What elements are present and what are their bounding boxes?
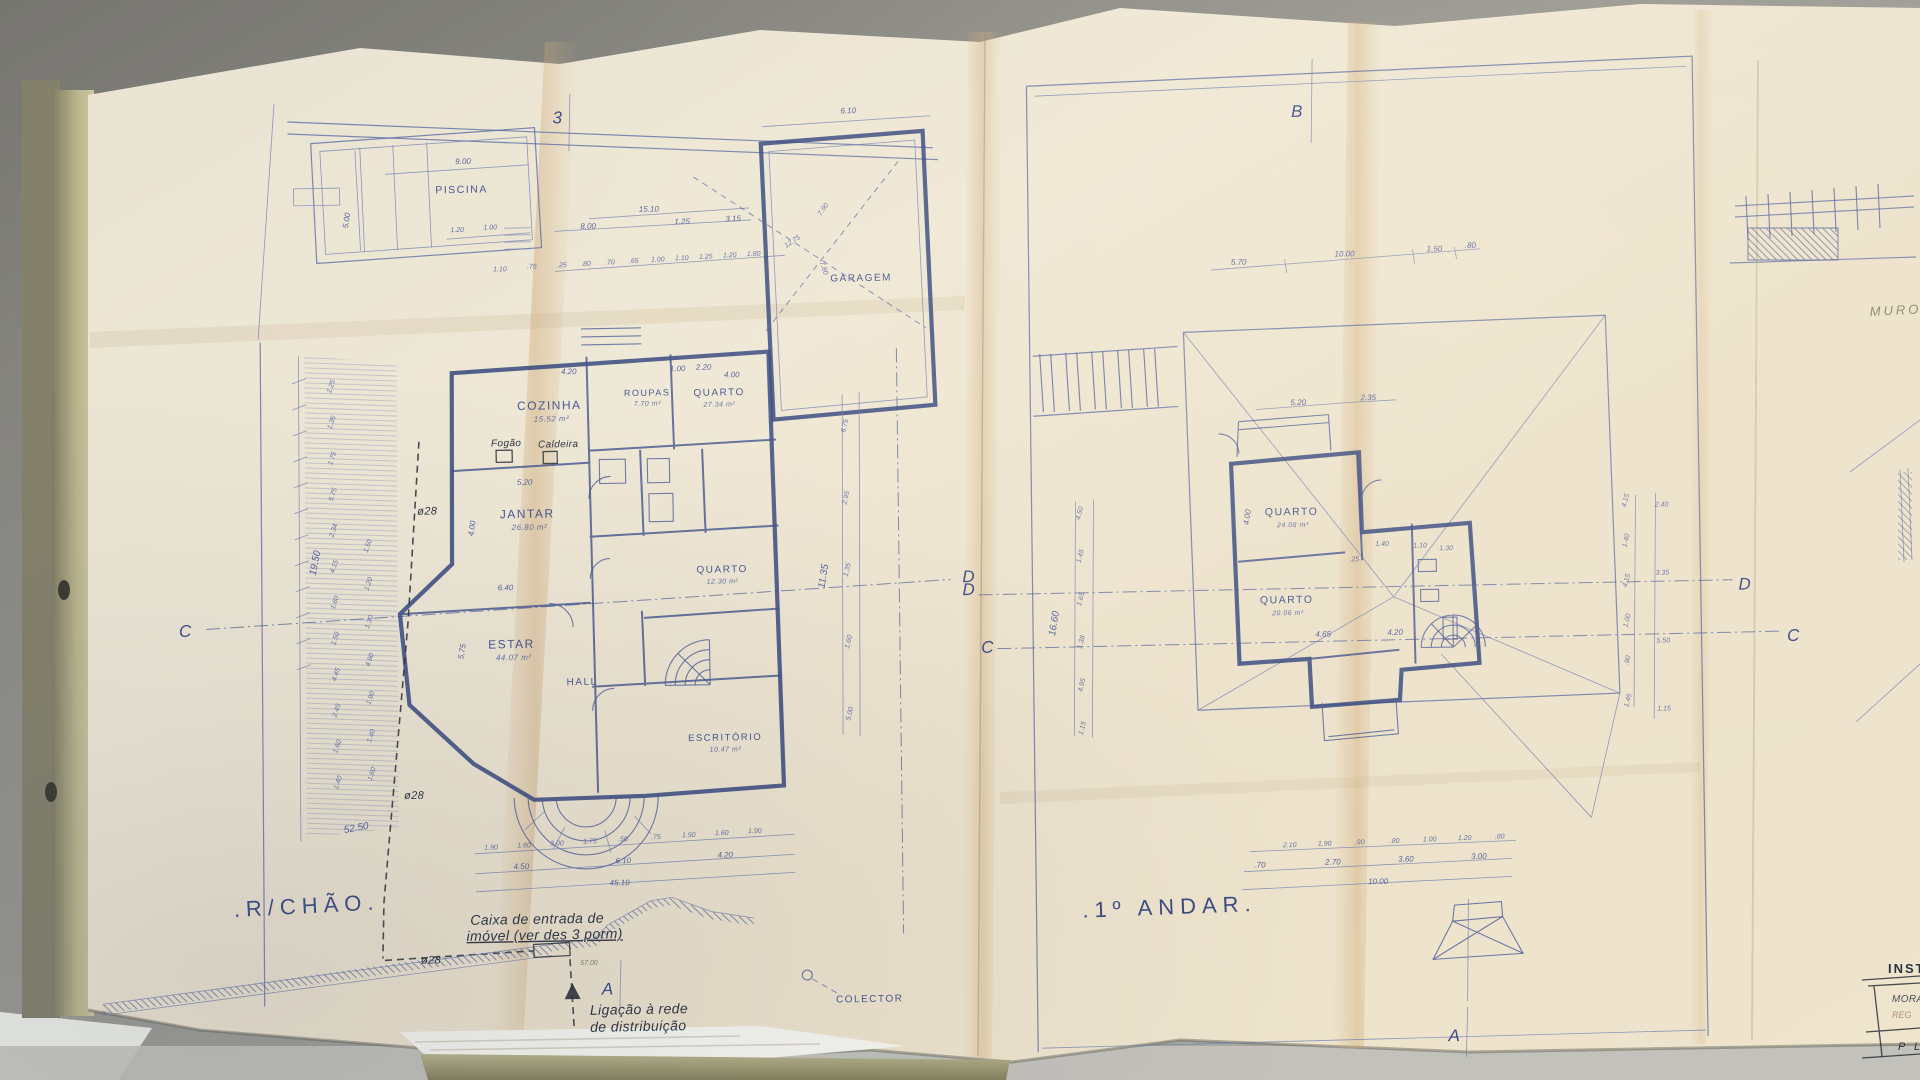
photo-of-architectural-blueprint: C D 3 PISCINA 9.00 5.00 1.20 1.00 1 xyxy=(0,0,1920,1080)
blueprint-scene: C D 3 PISCINA 9.00 5.00 1.20 1.00 1 xyxy=(0,0,1920,1080)
lighting-overlays xyxy=(0,0,1920,1080)
